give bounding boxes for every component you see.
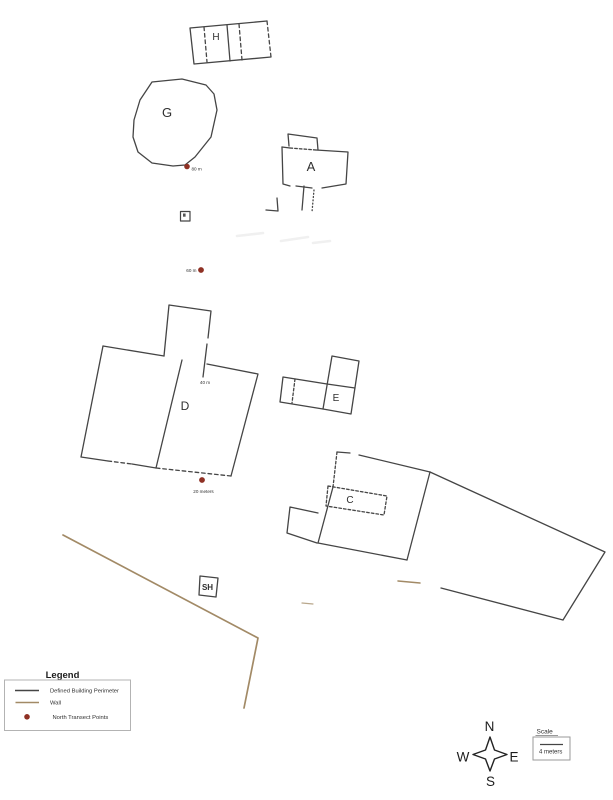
legend-swatch-transect-dot bbox=[24, 714, 30, 720]
scale-box: Scale 4 meters bbox=[533, 729, 570, 761]
building-a-door-wall bbox=[302, 186, 304, 210]
legend-title: Legend bbox=[46, 670, 80, 681]
wall-fragment-east bbox=[398, 581, 420, 583]
compass-rose-icon bbox=[473, 737, 507, 771]
legend-label-wall: Wall bbox=[50, 701, 61, 707]
building-h-partition-dashed-1 bbox=[204, 27, 207, 62]
building-d-label: D bbox=[181, 399, 190, 413]
small-square-mark bbox=[183, 214, 186, 217]
scale-value-label: 4 meters bbox=[539, 750, 562, 756]
building-h-label: H bbox=[212, 32, 219, 43]
faint-mark-3 bbox=[313, 241, 330, 243]
building-c-east-wall bbox=[407, 472, 430, 560]
building-e-label: E bbox=[333, 393, 340, 404]
building-c-north-wall-2 bbox=[359, 455, 430, 472]
building-e-west-wing bbox=[280, 377, 327, 409]
building-d-south-wall bbox=[132, 464, 156, 468]
enclosure-south-wall bbox=[441, 588, 563, 620]
legend-label-building-perimeter: Defined Building Perimeter bbox=[50, 689, 119, 695]
building-a-label: A bbox=[307, 159, 316, 174]
building-c-west-wall-dashed bbox=[333, 452, 337, 487]
building-c-outline bbox=[287, 452, 605, 620]
compass-rose: N W E S bbox=[457, 719, 519, 789]
building-e-wing-partition-dashed bbox=[292, 379, 295, 403]
building-h-partition-solid bbox=[227, 25, 230, 61]
compass-east-label: E bbox=[509, 750, 518, 765]
enclosure-northeast-walls bbox=[430, 472, 605, 620]
building-a-north-wall-dashed bbox=[290, 148, 316, 150]
site-plan-map: H G A D E C SH 80 m 60 m 40 m 20 meters … bbox=[0, 0, 613, 800]
scale-box-frame bbox=[533, 737, 570, 760]
building-c-inner-room-dashed bbox=[326, 486, 387, 515]
faint-marks bbox=[237, 233, 330, 243]
building-a-north-wall-1 bbox=[282, 147, 290, 148]
labels-layer: H G A D E C SH 80 m 60 m 40 m 20 meters bbox=[162, 32, 354, 592]
building-c-west-wall bbox=[318, 487, 333, 543]
building-c-west-annex bbox=[287, 507, 318, 543]
building-d-southeast-wall-dashed bbox=[156, 468, 231, 476]
building-a-south-fragment bbox=[266, 198, 278, 211]
transect-label-60m: 60 m bbox=[186, 268, 196, 273]
compass-west-label: W bbox=[457, 750, 470, 765]
compass-south-label: S bbox=[486, 774, 495, 789]
building-e-outline bbox=[280, 356, 359, 414]
building-e-main bbox=[323, 356, 359, 414]
building-d-east-walls bbox=[207, 364, 258, 476]
building-c-north-wall-1 bbox=[337, 452, 350, 453]
building-sh-label: SH bbox=[202, 583, 213, 592]
wall-fragment-small bbox=[302, 603, 313, 604]
faint-mark-2 bbox=[281, 237, 308, 241]
building-d-outline bbox=[81, 305, 258, 476]
building-d-north-annex bbox=[164, 305, 211, 356]
building-h-east-wall-dashed bbox=[267, 21, 271, 57]
transect-point-80m bbox=[184, 164, 190, 170]
building-c-south-wall bbox=[318, 543, 407, 560]
scale-title: Scale bbox=[537, 729, 554, 736]
building-g-label: G bbox=[162, 105, 172, 120]
building-a-east-walls bbox=[316, 150, 348, 188]
compass-north-label: N bbox=[485, 719, 495, 734]
buildings-layer bbox=[81, 21, 605, 620]
building-a-west-wall bbox=[282, 147, 290, 186]
building-h-outline bbox=[190, 21, 271, 64]
transect-label-20m: 20 meters bbox=[193, 489, 214, 494]
building-d-partition bbox=[156, 360, 182, 468]
building-e-partition bbox=[327, 384, 355, 388]
small-square-feature bbox=[181, 212, 191, 222]
building-d-north-wall bbox=[103, 346, 164, 356]
faint-mark-1 bbox=[237, 233, 263, 236]
transect-point-60m bbox=[198, 267, 204, 273]
legend: Legend Defined Building Perimeter Wall N… bbox=[5, 670, 131, 731]
transect-label-80m: 80 m bbox=[192, 167, 202, 172]
building-h-walls bbox=[190, 21, 271, 64]
legend-label-transect-points: North Transect Points bbox=[53, 715, 109, 721]
transect-label-40m: 40 m bbox=[200, 380, 210, 385]
building-d-annex-east-wall bbox=[203, 344, 207, 377]
building-a-door-wall-dotted bbox=[312, 190, 314, 212]
building-h-partition-dashed-2 bbox=[239, 24, 242, 60]
building-d-south-wall-dashed bbox=[108, 461, 132, 464]
building-g-outline bbox=[133, 79, 217, 166]
transect-point-20m bbox=[199, 477, 205, 483]
building-d-west-walls bbox=[81, 346, 108, 461]
building-c-label: C bbox=[346, 495, 353, 506]
